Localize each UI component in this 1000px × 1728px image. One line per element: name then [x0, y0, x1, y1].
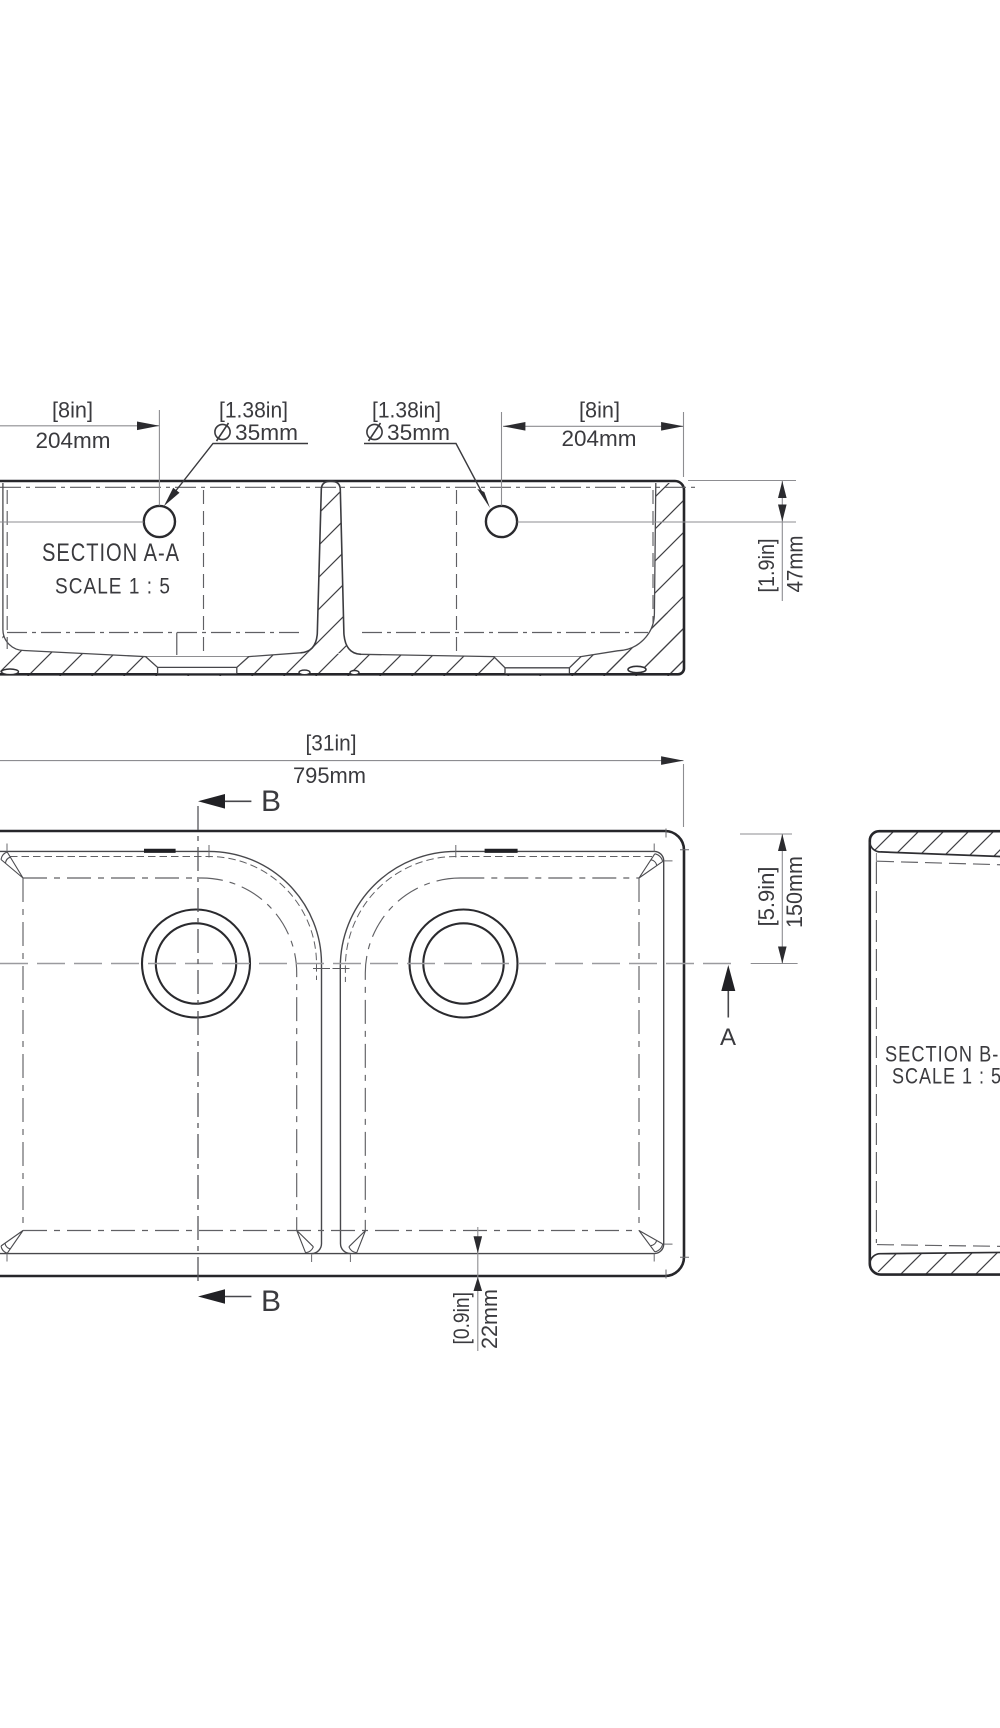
svg-text:204mm: 204mm	[562, 426, 637, 451]
svg-text:150mm: 150mm	[782, 856, 807, 928]
svg-text:[31in]: [31in]	[306, 731, 357, 756]
svg-text:35mm: 35mm	[235, 420, 298, 445]
svg-text:22mm: 22mm	[477, 1289, 502, 1349]
svg-text:A: A	[720, 1024, 736, 1051]
svg-text:[1.9in]: [1.9in]	[754, 539, 779, 593]
svg-text:[5.9in]: [5.9in]	[754, 867, 779, 927]
svg-text:47mm: 47mm	[783, 536, 808, 593]
svg-text:B: B	[261, 1285, 281, 1318]
svg-text:SCALE 1 : 5: SCALE 1 : 5	[892, 1064, 1000, 1089]
svg-text:SCALE 1 : 5: SCALE 1 : 5	[55, 574, 171, 599]
svg-text:[8in]: [8in]	[579, 398, 620, 423]
svg-text:[8in]: [8in]	[52, 398, 93, 423]
svg-text:[0.9in]: [0.9in]	[449, 1292, 474, 1345]
svg-text:204mm: 204mm	[36, 428, 111, 453]
svg-text:795mm: 795mm	[293, 763, 366, 788]
svg-text:[1.38in]: [1.38in]	[372, 398, 441, 423]
svg-text:[1.38in]: [1.38in]	[219, 398, 288, 423]
svg-text:SECTION A-A: SECTION A-A	[42, 539, 180, 567]
svg-text:B: B	[261, 785, 281, 818]
svg-text:35mm: 35mm	[387, 420, 450, 445]
